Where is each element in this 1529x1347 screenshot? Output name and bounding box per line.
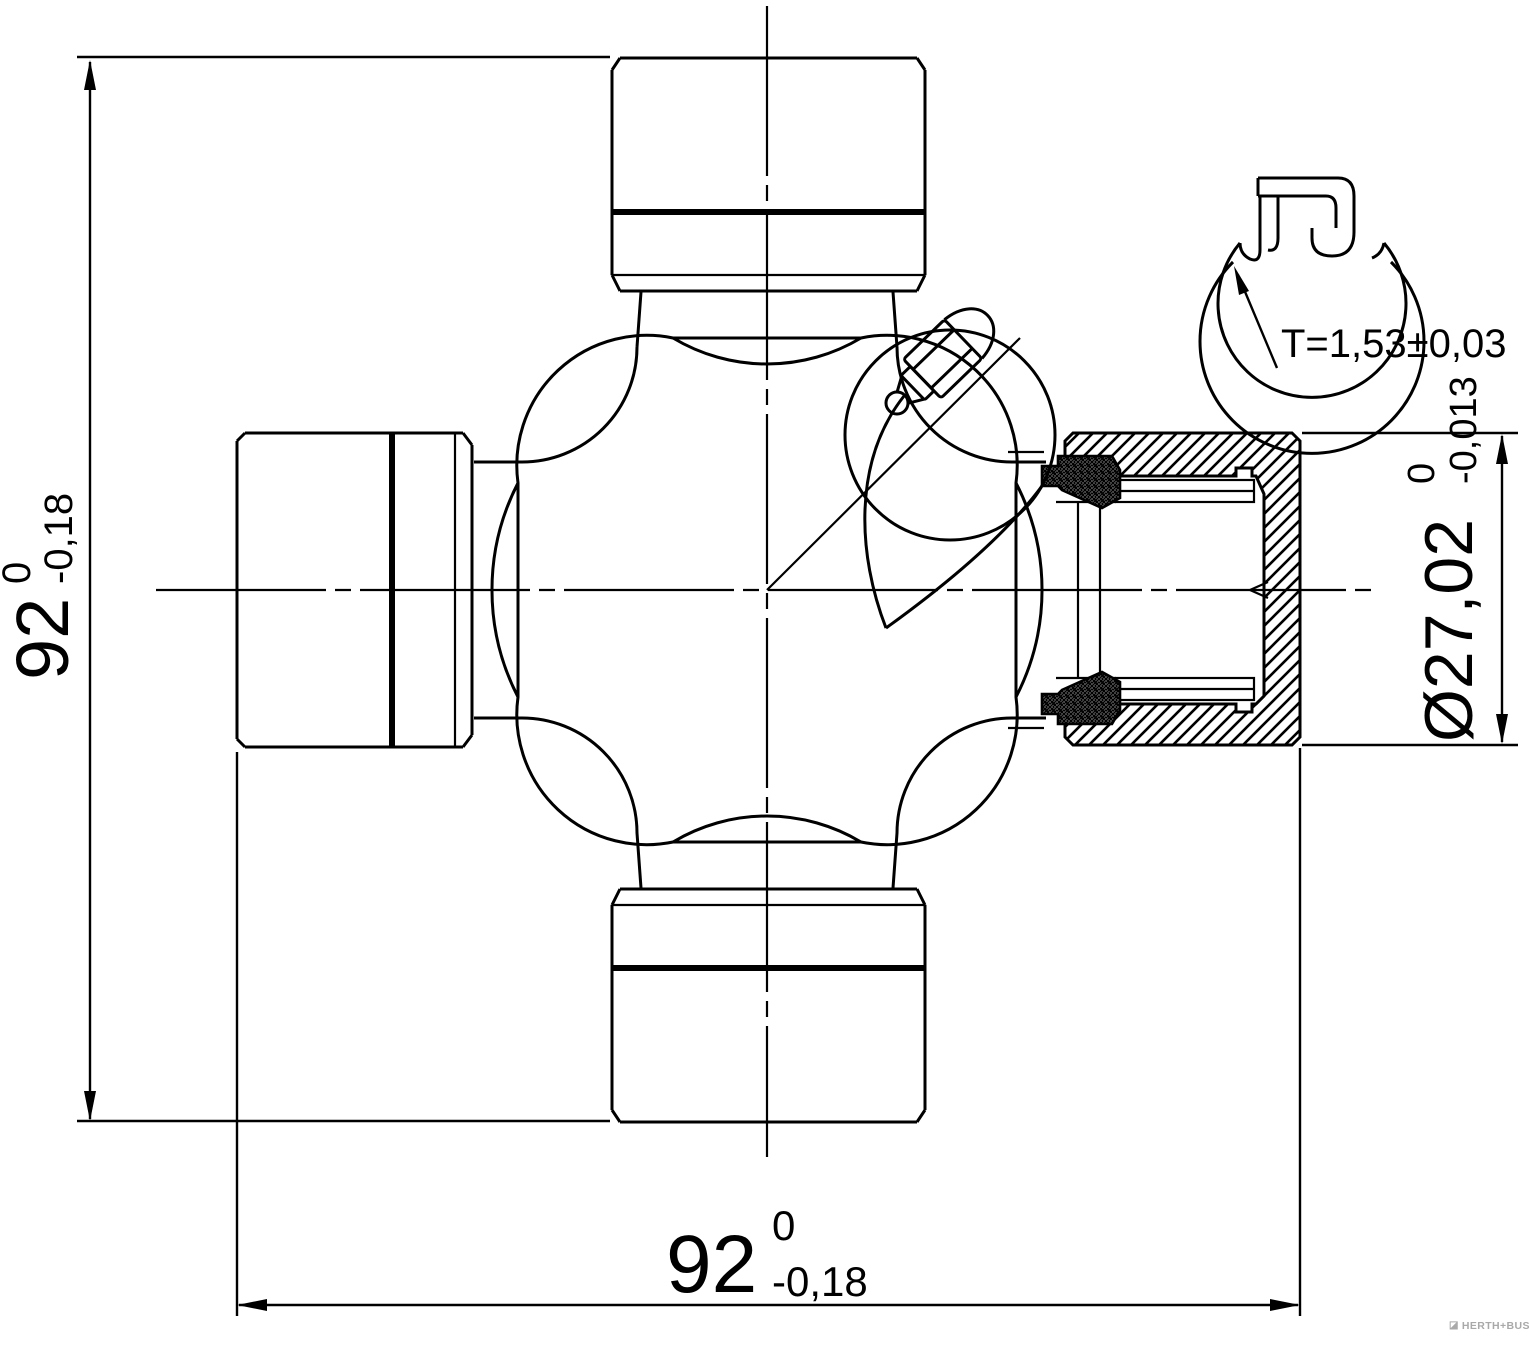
spider-fillet-top-left	[474, 347, 637, 462]
arrowhead-up	[1496, 434, 1508, 464]
ujoint-technical-drawing: T=1,53±0,03 92 0 -0,18 92 0 -0,18 Ø27,02…	[0, 0, 1529, 1347]
dim-diameter-value: Ø27,02	[1411, 519, 1487, 742]
arrowhead-down	[84, 1091, 96, 1121]
ring-right-foot-close	[1372, 243, 1384, 258]
needle-rollers-top	[1116, 480, 1254, 502]
arrowhead-up	[84, 60, 96, 90]
dim-width: 92 0 -0,18	[237, 748, 1300, 1316]
centerlines	[156, 6, 1377, 1157]
ring-tab-bar	[1258, 178, 1354, 256]
zerk-nipple	[870, 296, 1006, 430]
dim-height-value: 92	[1, 598, 84, 680]
dim-width-value: 92	[666, 1219, 757, 1310]
extension-lines	[237, 748, 1300, 1316]
ring-tab-bar-inner	[1258, 196, 1336, 228]
drawing-canvas: T=1,53±0,03 92 0 -0,18 92 0 -0,18 Ø27,02…	[0, 0, 1529, 1347]
spider-fillet-bottom-left	[474, 718, 641, 888]
arrowhead-down	[1496, 714, 1508, 744]
ring-leader-arrowhead	[1234, 266, 1249, 295]
top-bearing-cap	[612, 58, 925, 291]
ring-inner-arc	[1218, 243, 1406, 397]
cap-outline	[612, 58, 925, 275]
dim-height-tol-lower: -0,18	[37, 493, 81, 584]
bottom-bearing-cap	[612, 889, 925, 1122]
watermark-text: HERTH+BUSS	[1462, 1320, 1529, 1332]
dim-height-tol-upper: 0	[0, 562, 39, 584]
seal-top	[1042, 456, 1120, 508]
arrowhead-right	[1270, 1299, 1300, 1311]
spider-fillet-bottom-right	[893, 718, 1046, 888]
cap-mouth	[612, 275, 925, 291]
needle-rollers-bottom	[1116, 678, 1254, 700]
cap-mouth	[612, 889, 925, 905]
ring-left-leg	[1240, 196, 1278, 260]
herth-buss-logo-icon: ◪	[1449, 1321, 1459, 1331]
dim-cap-diameter: Ø27,02 0 -0,013	[1302, 376, 1518, 745]
seal-bottom	[1042, 672, 1120, 724]
dim-diameter-tol-upper: 0	[1401, 463, 1443, 484]
dim-width-tol-upper: 0	[772, 1202, 795, 1249]
watermark-logo: ◪ HERTH+BUSS	[1449, 1320, 1529, 1332]
ring-thickness-label: T=1,53±0,03	[1281, 322, 1506, 366]
arrowhead-left	[237, 1299, 267, 1311]
cap-outline	[612, 905, 925, 1122]
dim-diameter-tol-lower: -0,013	[1443, 376, 1485, 484]
dim-width-tol-lower: -0,18	[772, 1258, 868, 1305]
